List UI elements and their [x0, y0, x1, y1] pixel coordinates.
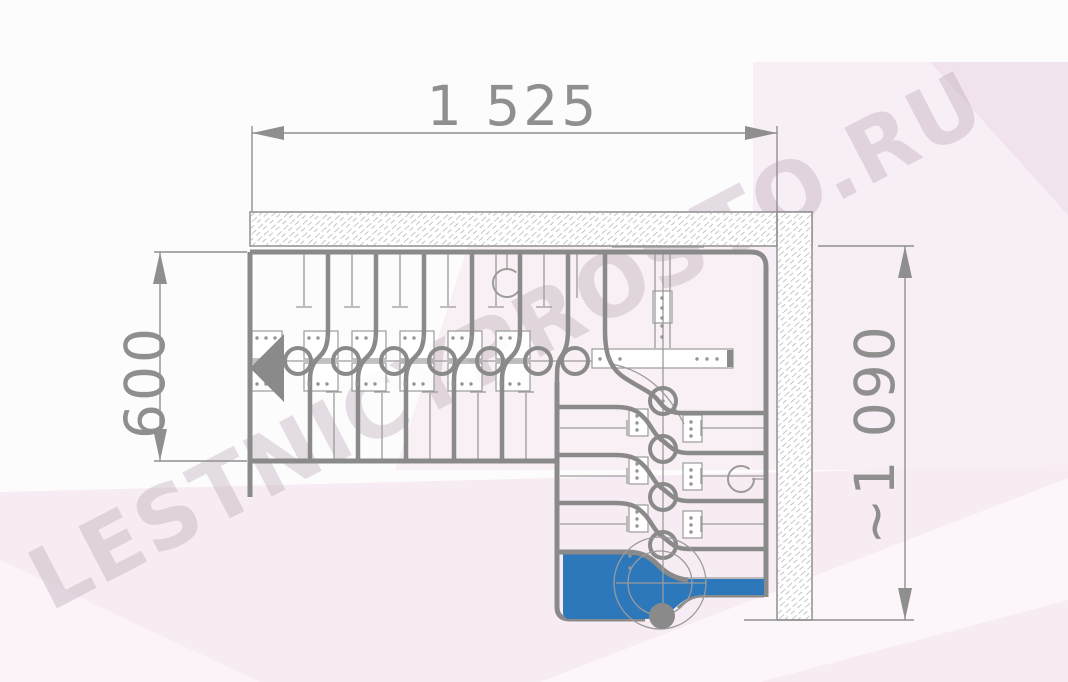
staircase-plan-page: LESTNICYPROSTO.RU [0, 0, 1068, 682]
top-wall-hatch [250, 212, 812, 246]
dimension-depth: 600 [113, 252, 247, 461]
dim-arrow-up-icon [153, 252, 167, 284]
bracket-end-cap [727, 350, 733, 367]
dimension-depth-label: 600 [113, 325, 177, 439]
center-pole [649, 603, 675, 629]
dimension-width-label: 1 525 [427, 74, 599, 138]
dimension-height-label: ~1 090 [843, 323, 907, 545]
right-wall-hatch [777, 212, 812, 620]
dim-arrow-left-icon [252, 126, 284, 140]
staircase-plan-drawing: LESTNICYPROSTO.RU [0, 0, 1068, 682]
